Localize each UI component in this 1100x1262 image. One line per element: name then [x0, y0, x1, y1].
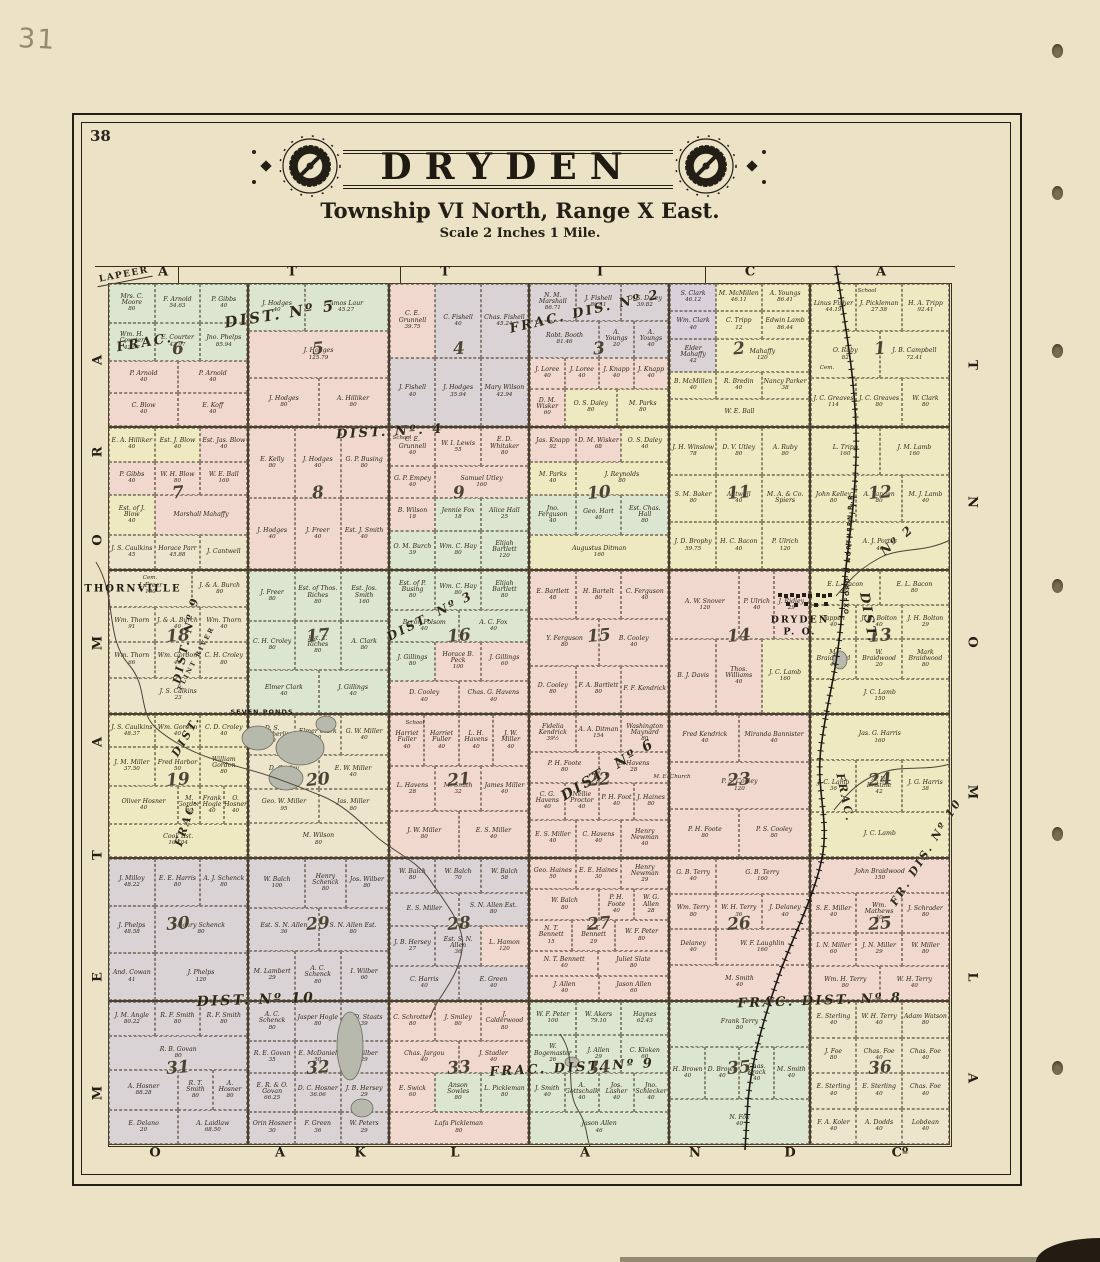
parcel-label: M. Wilson80 — [249, 823, 387, 857]
border-letter-top: A — [876, 265, 886, 280]
owner-name: Mark Braidwood — [904, 650, 947, 662]
parcel-label: Chas. Krack40 — [739, 1047, 774, 1098]
owner-name: And. Cowan — [113, 970, 151, 976]
acreage: 100 — [547, 1019, 558, 1025]
section-parcels: J. H. Winslow78D. V. Utley80A. Ruby80S. … — [670, 428, 808, 570]
acreage: 40 — [876, 1056, 883, 1062]
parcel-label: Lafa Pickleman80 — [390, 1112, 528, 1144]
owner-name: W. H. Terry — [721, 905, 756, 911]
parcel-label: E. S. Miller40 — [530, 820, 576, 857]
acreage: 80 — [630, 964, 637, 970]
parcel-label: F. A. Bartlett80 — [576, 666, 622, 713]
acreage: 36 — [314, 1129, 321, 1135]
acreage: 29 — [361, 1058, 368, 1064]
acreage: 40 — [876, 1127, 883, 1133]
acreage: 38 — [782, 386, 789, 392]
parcel-label: Elmer Clark40 — [249, 670, 318, 713]
parcel-label: A. Youngs20 — [599, 321, 634, 358]
acreage: 80 — [922, 663, 929, 669]
owner-name: N. M. Marshall — [532, 293, 574, 305]
banner-dot — [252, 150, 256, 154]
acreage: 154 — [593, 734, 604, 740]
acreage: 40 — [684, 1074, 691, 1080]
acreage: 40 — [922, 1056, 929, 1062]
parcel-label: J. C. Lamb160 — [762, 639, 809, 713]
acreage: 40 — [561, 964, 568, 970]
acreage: 80 — [455, 1022, 462, 1028]
border-letter-left: A — [91, 737, 106, 747]
parcel-label: O. Ruby82 — [811, 331, 880, 378]
parcel-label: J. Delaney40 — [762, 894, 809, 929]
place-label-school: School — [406, 720, 425, 726]
acreage: 150 — [874, 876, 885, 882]
parcel-label: J. H. Bolton29 — [902, 605, 949, 639]
border-band-tick — [705, 266, 706, 283]
parcel-label: Elijah Bartlett80 — [481, 571, 528, 610]
acreage: 80 — [911, 589, 918, 595]
acreage: 80.22 — [124, 1020, 140, 1026]
section-parcels: J. Milloy48.22E. E. Harris80A. J. Schenc… — [109, 859, 247, 1001]
acreage: 80 — [690, 913, 697, 919]
section-parcels: E. Bartlett48H. Bartelt80C. Ferguson40Y.… — [530, 571, 668, 713]
acreage: 39 — [361, 1022, 368, 1028]
parcel-label: J. Freer40 — [295, 498, 341, 569]
acreage: 80 — [174, 883, 181, 889]
parcel-label: G. P. Empey40 — [390, 466, 436, 498]
acreage: 80 — [618, 479, 625, 485]
section-15: E. Bartlett48H. Bartelt80C. Ferguson40Y.… — [529, 570, 669, 714]
parcel-label: J. Milloy48.22 — [109, 859, 155, 906]
parcel-label: Y. Ferguson80 — [530, 619, 599, 666]
owner-name: J. C. Greaves — [813, 396, 853, 402]
acreage: 29 — [361, 1093, 368, 1099]
acreage: 28 — [630, 768, 637, 774]
acreage: 37.50 — [124, 767, 140, 773]
parcel-label: Horace B. Peck100 — [435, 642, 481, 681]
parcel-label: J. Hodges35.94 — [435, 358, 481, 426]
section-parcels: S. Clark46.12M. McMillen46.11A. Youngs86… — [670, 284, 808, 426]
parcel-label: N. T. Bennett15 — [530, 920, 572, 951]
parcel-label: L. Havens28 — [390, 766, 436, 811]
owner-name: W. Balch — [551, 898, 578, 904]
parcel-label: Jason Allen46 — [530, 1112, 668, 1144]
parcel-label: Chas. Foe40 — [902, 1038, 949, 1073]
parcel-label: P. H. Foote80 — [670, 809, 739, 856]
section-parcels: Linus Fisher44.19J. Pickleman27.58H. A. … — [811, 284, 949, 426]
acreage: 40 — [578, 1096, 585, 1102]
acreage: 80 — [501, 594, 508, 600]
parcel-label: Est. T. Riches80 — [295, 621, 341, 670]
handwritten-page-number: 31 — [17, 23, 57, 56]
acreage: 40 — [830, 623, 837, 629]
section-parcels: E. Sterling40W. H. Terry40Adam Watson80J… — [811, 1002, 949, 1144]
acreage: 80 — [922, 913, 929, 919]
border-letter-left: E — [91, 972, 106, 982]
acreage: 29 — [876, 950, 883, 956]
parcel-label: E. D. Whitaker80 — [481, 428, 528, 467]
section-parcels: Jas. Knapp92D. M. Wisker68O. S. Daley40M… — [530, 428, 668, 570]
acreage: 125.79 — [309, 356, 329, 362]
acreage: 30 — [269, 1129, 276, 1135]
acreage: 35 — [269, 1058, 276, 1064]
parcel-label: E. Sterling40 — [811, 1073, 857, 1108]
owner-name: J. Delaney — [769, 905, 800, 911]
acreage: 40 — [690, 386, 697, 392]
acreage: 60 — [501, 662, 508, 668]
parcel-label: J. Smiley80 — [435, 1002, 481, 1041]
parcel-label: J. Foe80 — [811, 1038, 857, 1073]
map-title: DRYDEN — [343, 146, 673, 188]
parcel-label: W. Akers79.10 — [576, 1002, 622, 1034]
village-block — [784, 594, 788, 598]
owner-name: D. S. Chamberlin — [251, 726, 293, 738]
parcel-label: Est. J. Smith40 — [341, 498, 388, 569]
acreage: 29 — [361, 1129, 368, 1135]
acreage: 100 — [453, 665, 464, 671]
owner-name: Geo. W. Miller — [262, 799, 306, 805]
parcel-label: Jas. Miller80 — [319, 789, 388, 823]
owner-name: Marshall Mahaffy — [173, 512, 228, 518]
parcel-label: C. Tripp12 — [716, 311, 762, 338]
owner-name: E. Sterling — [862, 1084, 896, 1090]
parcel-label: R. B. Govan80 — [109, 1036, 247, 1070]
owner-name: P. Ulrich — [772, 539, 798, 545]
acreage: 40 — [578, 374, 585, 380]
parcel-label: B. J. Davis — [670, 639, 716, 713]
acreage: 40 — [641, 445, 648, 451]
parcel-label: J. S. Caulkins48.37 — [109, 715, 155, 747]
owner-name: J. C. Greaves — [859, 396, 899, 402]
acreage: 70 — [455, 876, 462, 882]
acreage: 18 — [409, 515, 416, 521]
parcel-label: Alltwell40 — [716, 475, 762, 522]
acreage: 40 — [922, 1092, 929, 1098]
border-letter-left: T — [91, 850, 106, 860]
village-block — [816, 593, 820, 597]
acreage: 40 — [350, 773, 357, 779]
acreage: 86.41 — [777, 298, 793, 304]
acreage: 40 — [544, 374, 551, 380]
acreage: 66.25 — [264, 1096, 280, 1102]
acreage: 40 — [208, 809, 215, 815]
parcel-label: J. W. Miller40 — [493, 715, 528, 766]
parcel-label: C. H. Croley80 — [200, 642, 247, 677]
parcel-label: Samuel Utley160 — [435, 466, 528, 498]
owner-name: Edwin Lamb — [765, 318, 804, 324]
parcel-label: J. Hodges80 — [249, 378, 318, 425]
owner-name: Wm. Thorn — [114, 653, 149, 659]
acreage: 80 — [455, 1096, 462, 1102]
acreage: 80 — [216, 590, 223, 596]
owner-name: N. T. Bennett — [532, 926, 570, 938]
owner-name: M. Braidwood — [813, 650, 855, 662]
acreage: 80 — [220, 770, 227, 776]
parcel-label: M. Parks40 — [530, 462, 576, 496]
owner-name: C. E. Grunnell — [392, 311, 434, 323]
border-letter-top: C — [745, 265, 755, 280]
section-7: E. A. Hilliker40Est. J. Blow40Est. Jas. … — [108, 427, 248, 571]
acreage: 80 — [561, 643, 568, 649]
section-20: D. S. Chamberlin40Elmer Clark40G. W. Mil… — [248, 714, 388, 858]
parcel-label: P. H. Foote40 — [599, 889, 634, 920]
owner-name: A. Gottschalk — [565, 1083, 599, 1095]
owner-name: A. Youngs — [636, 330, 667, 342]
parcel-label: B. McMillen40 — [670, 372, 716, 399]
acreage: 40 — [314, 535, 321, 541]
owner-name: Frank Terry — [721, 1019, 758, 1025]
acreage: 59.75 — [685, 547, 701, 553]
parcel-label: Est. S. N. Allen36 — [435, 926, 481, 966]
owner-name: E. E. Haines — [579, 868, 618, 874]
parcel-label: P. S. Cooley80 — [739, 809, 808, 856]
parcel-label: J. N. Miller29 — [856, 933, 902, 967]
border-letter-bottom: N — [689, 1146, 701, 1161]
parcel-label: I. Wilber29 — [341, 1041, 388, 1073]
owner-name: W. H. Terry — [861, 1014, 896, 1020]
owner-name: William Gordon — [202, 757, 245, 769]
parcel-label: D. S. Chamberlin40 — [249, 715, 295, 755]
parcel-label: J. B. Hersey27 — [390, 926, 436, 966]
acreage: 39½ — [547, 737, 560, 743]
owner-name: D. M. Wisker — [532, 398, 563, 410]
acreage: 80 — [269, 646, 276, 652]
owner-name: Est. J. Smith — [345, 528, 384, 534]
acreage: 114 — [828, 403, 839, 409]
plate-number: 38 — [90, 127, 111, 145]
owner-name: J. C. Lamb — [864, 690, 896, 696]
parcel-label: I. N. Miller60 — [811, 933, 857, 967]
acreage: 42.94 — [496, 393, 512, 399]
owner-name: E. S. Miller — [407, 906, 442, 912]
owner-name: Harriet Fuller — [426, 731, 457, 743]
section-29: W. Balch100Henry Schenck80Jos. Wilber80E… — [248, 858, 388, 1002]
parcel-label: F. F. Kendrick — [621, 666, 668, 713]
acreage: 48 — [549, 596, 556, 602]
acreage: 80 — [876, 403, 883, 409]
parcel-label: J. Loree40 — [530, 358, 565, 389]
owner-name: Chas. Foe — [910, 1084, 941, 1090]
acreage: 40 — [549, 839, 556, 845]
section-23: Fred Kendrick40Miranda Bannister40P. S. … — [669, 714, 809, 858]
owner-name: W. G. Allen — [636, 895, 667, 907]
acreage: 80 — [363, 884, 370, 890]
acreage: 120 — [734, 787, 745, 793]
acreage: 80 — [736, 1026, 743, 1032]
acreage: 80 — [269, 597, 276, 603]
acreage: 160 — [218, 479, 229, 485]
acreage: 40 — [922, 1127, 929, 1133]
parcel-label: J. Hodges40 — [295, 428, 341, 499]
parcel-label: J. M. Angle80.22 — [109, 1002, 155, 1036]
owner-name: C. Havens — [583, 832, 615, 838]
acreage: 80 — [220, 661, 227, 667]
acreage: 120 — [499, 947, 510, 953]
owner-name: Elmer Clark — [299, 729, 337, 735]
acreage: 80 — [587, 408, 594, 414]
acreage: 40 — [647, 1096, 654, 1102]
acreage: 80 — [876, 499, 883, 505]
acreage: 50 — [549, 875, 556, 881]
parcel-label: Jason Allen60 — [599, 976, 668, 1001]
parcel-label: L. Hamon120 — [481, 926, 528, 966]
parcel-label: Chas. Jargou40 — [390, 1041, 459, 1073]
parcel-label: E. Green40 — [459, 966, 528, 1000]
owner-name: Est. of Thos. Riches — [297, 586, 339, 598]
section-parcels: E. Kelly80J. Hodges40G. P. Busing80J. Ho… — [249, 428, 387, 570]
acreage: 40 — [641, 596, 648, 602]
section-parcels: W. Balch100Henry Schenck80Jos. Wilber80E… — [249, 859, 387, 1001]
acreage: 40 — [140, 410, 147, 416]
owner-name: M. Parks — [629, 401, 657, 407]
owner-name: J. Stadler — [479, 1051, 508, 1057]
acreage: 160 — [359, 600, 370, 606]
village-block — [796, 594, 800, 598]
parcel-label: Elmer Clark40 — [295, 715, 341, 755]
acreage: 40 — [544, 805, 551, 811]
acreage: 40 — [561, 989, 568, 995]
owner-name: Oliver Hosner — [122, 799, 166, 805]
section-17: J. Freer80Est. of Thos. Riches80Est. Jos… — [248, 570, 388, 714]
parcel-label: Est. S. N. Allen36 — [249, 908, 318, 951]
parcel-label: Est. Jos. Smith160 — [341, 571, 388, 620]
parcel-label: W. Balch80 — [390, 859, 436, 893]
village-block — [824, 602, 828, 606]
map-top-band — [95, 266, 955, 267]
acreage: 40 — [830, 1127, 837, 1133]
acreage: 40 — [876, 1092, 883, 1098]
section-parcels: Frank Terry80H. Brown40D. Brown40Chas. K… — [670, 1002, 808, 1144]
owner-name: E. Bartlett — [536, 589, 569, 595]
acreage: 40 — [473, 745, 480, 751]
parcel-label: J. M. Lamb160 — [880, 428, 949, 475]
parcel-label: James Miller40 — [481, 766, 528, 811]
owner-name: D. Cooley — [409, 690, 439, 696]
owner-name: A. Hosner — [128, 1084, 159, 1090]
parcel-label: Jennie Fox18 — [435, 498, 481, 530]
parcel-label: C. Havens40 — [576, 820, 622, 857]
owner-name: A. Hilliker — [337, 396, 369, 402]
parcel-label: Mahaffy120 — [716, 339, 809, 372]
owner-name: Horace B. Peck — [437, 652, 479, 664]
village-block — [778, 593, 782, 597]
acreage: 39 — [409, 551, 416, 557]
owner-name: E. Delano — [128, 1121, 158, 1127]
acreage: 40 — [140, 806, 147, 812]
owner-name: G. W. Miller — [346, 729, 383, 735]
border-letter-bottom: A — [275, 1146, 285, 1161]
border-letter-right: A — [965, 1073, 980, 1083]
acreage: 80 — [314, 1022, 321, 1028]
parcel-label: W. E. Ball — [670, 399, 808, 425]
acreage: 80 — [641, 519, 648, 525]
border-letter-top: A — [158, 265, 168, 280]
owner-name: C. Kloken — [630, 1048, 660, 1054]
parcel-label: Est. Chas. Hall80 — [621, 495, 668, 535]
acreage: 40 — [128, 519, 135, 525]
owner-name: Thos. Williams — [718, 667, 760, 679]
acreage: 80 — [735, 452, 742, 458]
parcel-label: Chas. Foe40 — [856, 1038, 902, 1073]
parcel-label: Frank Hogle40 — [200, 786, 224, 825]
acreage: 40 — [220, 445, 227, 451]
parcel-label: E. Kelly80 — [249, 428, 295, 499]
parcel-label: Est. of J. Blow40 — [109, 495, 155, 535]
acreage: 80 — [409, 1022, 416, 1028]
village-block — [804, 602, 808, 606]
acreage: 40 — [647, 343, 654, 349]
parcel-label: Thos. Williams40 — [716, 639, 762, 713]
acreage: 29 — [269, 976, 276, 982]
owner-name: E. S. Miller — [535, 832, 570, 838]
acreage: 18 — [455, 515, 462, 521]
scan-shadow — [620, 1257, 1100, 1262]
acreage: 40 — [220, 625, 227, 631]
acreage: 160 — [476, 483, 487, 489]
parcel-label: Wm. Terry80 — [670, 894, 716, 929]
acreage: 40 — [140, 378, 147, 384]
owner-name: A. Hosner — [215, 1081, 246, 1093]
parcel-label: J. Gillings40 — [319, 670, 388, 713]
acreage: 81.46 — [557, 340, 573, 346]
owner-name: Elder Mahaffy — [672, 346, 714, 358]
parcel-label: J. Allen40 — [530, 976, 599, 1001]
place-label-school: School — [393, 435, 412, 441]
parcel-label: G. B. Terry40 — [670, 859, 716, 894]
owner-name: F. Green — [305, 1121, 331, 1127]
parcel-label: J. Hodges40 — [249, 498, 295, 569]
owner-name: J. Calderwood — [483, 1012, 526, 1024]
owner-name: A. Youngs — [601, 330, 632, 342]
acreage: 40 — [490, 984, 497, 990]
parcel-label: Fred Kendrick40 — [670, 715, 739, 762]
parcel-label: Marshall Mahaffy — [155, 495, 248, 535]
owner-name: Henry Newman — [623, 829, 666, 841]
acreage: 66 — [128, 661, 135, 667]
acreage: 80 — [280, 403, 287, 409]
section-21: Harriet Fuller40Harriet Fuller40L. H. Ha… — [389, 714, 529, 858]
parcel-label: Edwin Lamb86.44 — [762, 311, 809, 338]
owner-name: O. Hosner — [224, 796, 247, 808]
parcel-label: J. C. Greaves80 — [856, 378, 902, 425]
parcel-label: W. Braidwood20 — [856, 639, 902, 679]
township-subtitle: Township VI North, Range X East. — [260, 198, 780, 223]
section-26: G. B. Terry40G. B. Terry160Wm. Terry80W.… — [669, 858, 809, 1002]
parcel-label: Est. J. Blow40 — [155, 428, 201, 462]
section-parcels: A. W. Snover120P. Ulrich40J. Ridley29B. … — [670, 571, 808, 713]
parcel-label: A. Hilliker80 — [319, 378, 388, 425]
parcel-label: W. E. Ball160 — [200, 462, 247, 496]
owner-name: D. Cooley — [269, 766, 299, 772]
owner-name: Wm. Clark — [676, 318, 709, 324]
acreage: 40 — [782, 913, 789, 919]
page-corner-smudge — [1036, 1238, 1100, 1262]
punch-hole — [1052, 579, 1063, 593]
acreage: 40 — [220, 304, 227, 310]
parcel-label: H. Bartelt80 — [576, 571, 622, 618]
parcel-label: J. B. Hersey29 — [341, 1073, 388, 1112]
parcel-label: A. Clark80 — [341, 621, 388, 670]
owner-name: J. Freer — [306, 528, 329, 534]
place-label-dryden: DRYDEN — [771, 615, 830, 626]
acreage: 80 — [174, 1020, 181, 1026]
owner-name: P. H. Foote — [601, 895, 632, 907]
owner-name: E. Kelly — [260, 457, 284, 463]
acreage: 80 — [922, 1021, 929, 1027]
owner-name: Chas. G. Havens — [468, 690, 520, 696]
parcel-label: R. T. Smith80 — [178, 1070, 213, 1110]
acreage: 80 — [322, 887, 329, 893]
parcel-label: C. H. Croley80 — [249, 621, 295, 670]
